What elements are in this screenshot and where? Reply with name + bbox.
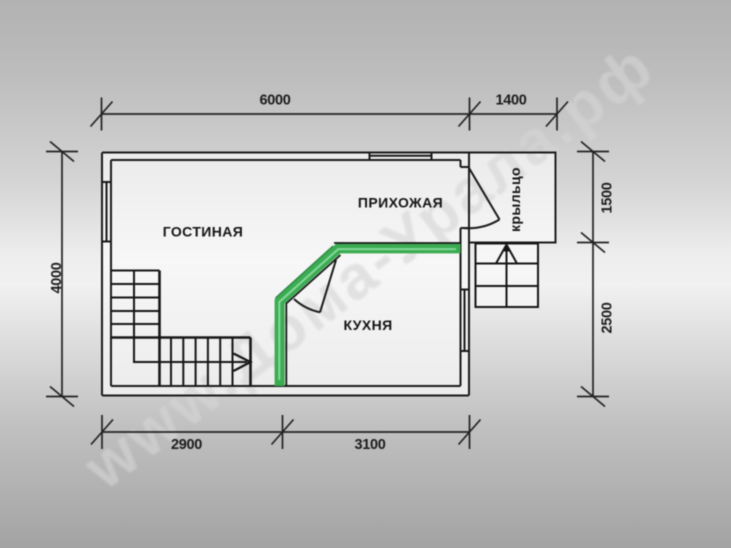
svg-text:2500: 2500	[600, 302, 616, 333]
svg-text:КУХНЯ: КУХНЯ	[343, 317, 392, 333]
svg-text:4000: 4000	[49, 262, 65, 293]
svg-text:6000: 6000	[259, 93, 290, 109]
svg-text:1500: 1500	[600, 182, 616, 213]
svg-text:крыльцо: крыльцо	[507, 167, 523, 232]
svg-text:ГОСТИНАЯ: ГОСТИНАЯ	[163, 224, 244, 240]
svg-text:1400: 1400	[495, 93, 526, 109]
svg-text:3100: 3100	[354, 437, 385, 453]
svg-text:ПРИХОЖАЯ: ПРИХОЖАЯ	[358, 195, 443, 211]
svg-text:2900: 2900	[171, 437, 202, 453]
